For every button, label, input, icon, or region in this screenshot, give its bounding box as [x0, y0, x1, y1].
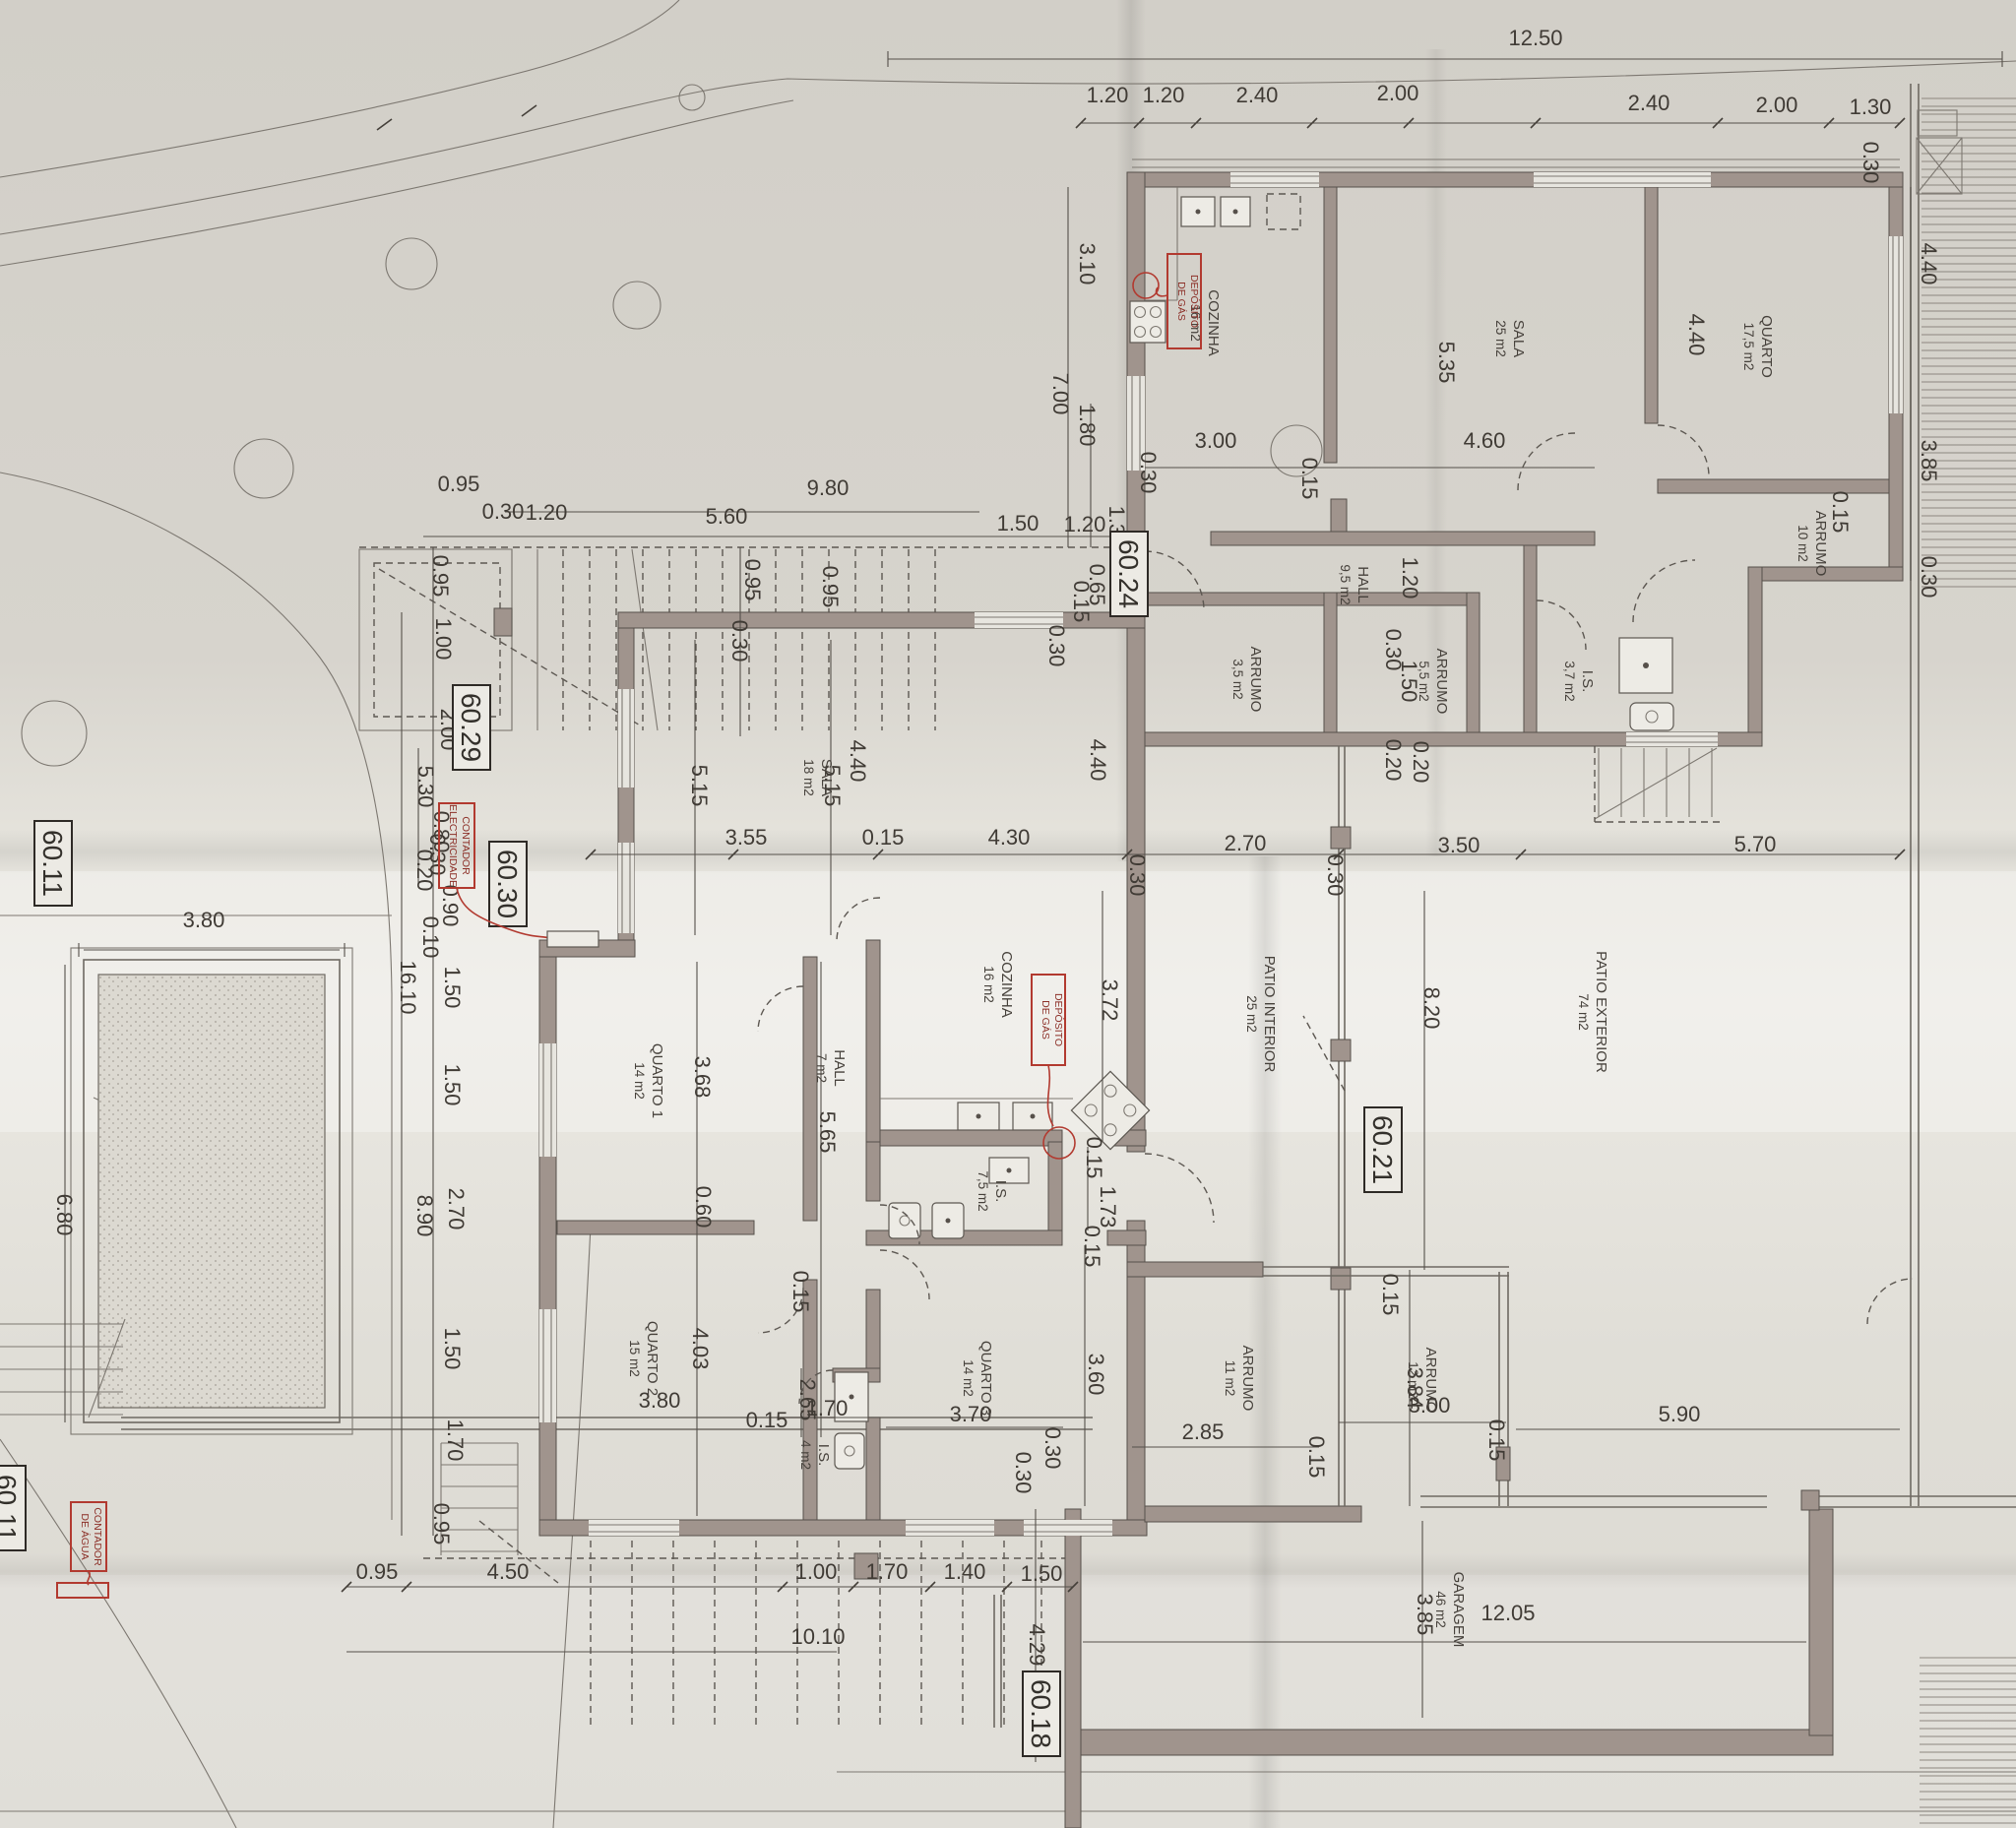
svg-text:2.70: 2.70	[444, 1188, 469, 1230]
svg-text:4.40: 4.40	[1086, 739, 1110, 782]
electricity-meter-box	[547, 931, 598, 947]
svg-text:0.30: 0.30	[1917, 556, 1941, 599]
svg-text:3.72: 3.72	[1098, 979, 1122, 1022]
level-marker-60-11: 60.11	[34, 821, 72, 906]
svg-text:0.95: 0.95	[429, 1503, 454, 1545]
svg-text:1.00: 1.00	[795, 1559, 838, 1584]
svg-text:12.05: 12.05	[1480, 1601, 1535, 1625]
svg-text:0.95: 0.95	[356, 1559, 399, 1584]
level-marker-60-24: 60.24	[1110, 532, 1148, 616]
svg-text:1.00: 1.00	[431, 618, 456, 661]
svg-text:3.85: 3.85	[1917, 440, 1941, 482]
svg-text:0.95: 0.95	[438, 472, 480, 496]
svg-text:0.10: 0.10	[418, 916, 443, 959]
svg-text:0.95: 0.95	[428, 555, 453, 598]
svg-text:2.00: 2.00	[1756, 93, 1798, 117]
floor-plan-sheet: 12.50 1.20 1.20 2.40 2.00 2.40 2.00 1.30…	[0, 0, 2016, 1828]
svg-text:2.40: 2.40	[1236, 83, 1279, 107]
svg-text:5.90: 5.90	[1659, 1402, 1701, 1426]
svg-text:60.18: 60.18	[1026, 1679, 1056, 1748]
toilet-is37	[1630, 703, 1673, 730]
svg-text:3.60: 3.60	[1084, 1354, 1108, 1396]
stove-upper	[1130, 301, 1165, 343]
svg-text:16.10: 16.10	[396, 960, 420, 1014]
svg-text:12.50: 12.50	[1508, 26, 1562, 50]
svg-text:8.90: 8.90	[412, 1195, 437, 1237]
svg-text:1.40: 1.40	[944, 1559, 986, 1584]
svg-text:60.21: 60.21	[1367, 1115, 1398, 1184]
svg-text:3.68: 3.68	[690, 1056, 715, 1099]
svg-text:60.30: 60.30	[492, 850, 523, 918]
svg-text:5.65: 5.65	[815, 1111, 840, 1154]
svg-text:2.40: 2.40	[1628, 91, 1670, 115]
svg-text:0.20: 0.20	[1381, 739, 1406, 782]
svg-text:1.20: 1.20	[526, 500, 568, 525]
svg-text:0.95: 0.95	[818, 566, 843, 608]
svg-text:3.00: 3.00	[1195, 428, 1237, 453]
svg-text:4.40: 4.40	[846, 740, 870, 783]
level-marker-60-11-b: 60.11	[0, 1466, 26, 1550]
svg-text:1.20: 1.20	[1398, 557, 1422, 599]
svg-text:CONTADORELECTRICIDADE: CONTADORELECTRICIDADE	[447, 804, 472, 887]
svg-text:1.70: 1.70	[866, 1559, 909, 1584]
toilet-is75	[889, 1203, 920, 1238]
svg-text:4.50: 4.50	[487, 1559, 530, 1584]
svg-text:0.30: 0.30	[1011, 1452, 1036, 1494]
svg-text:60.11: 60.11	[0, 1475, 22, 1542]
svg-text:0.15: 0.15	[1484, 1419, 1509, 1462]
svg-text:5.70: 5.70	[1734, 832, 1777, 856]
svg-text:1.50: 1.50	[997, 511, 1039, 536]
svg-text:0.15: 0.15	[1828, 491, 1853, 534]
svg-text:0.30: 0.30	[1323, 854, 1348, 897]
svg-text:1.73: 1.73	[1096, 1186, 1120, 1229]
level-marker-60-21: 60.21	[1364, 1107, 1402, 1192]
svg-text:0.30: 0.30	[727, 620, 752, 662]
svg-text:0.15: 0.15	[862, 825, 905, 850]
svg-text:0.15: 0.15	[1297, 458, 1322, 500]
svg-text:3.80: 3.80	[183, 908, 225, 932]
svg-text:6.80: 6.80	[52, 1194, 77, 1236]
svg-text:1.20: 1.20	[1143, 83, 1185, 107]
svg-text:4.29: 4.29	[1025, 1624, 1049, 1667]
svg-text:CONTADORDE ÁGUA: CONTADORDE ÁGUA	[79, 1507, 103, 1566]
svg-text:4.40: 4.40	[1684, 314, 1709, 356]
svg-text:1.50: 1.50	[1021, 1561, 1063, 1586]
svg-text:0.95: 0.95	[740, 559, 765, 601]
floor-plan-drawing: 12.50 1.20 1.20 2.40 2.00 2.40 2.00 1.30…	[0, 0, 2016, 1828]
svg-text:0.15: 0.15	[1304, 1436, 1329, 1479]
svg-text:0.15: 0.15	[1082, 1137, 1106, 1179]
svg-text:1.20: 1.20	[1064, 512, 1106, 536]
svg-text:0.30: 0.30	[1040, 1427, 1065, 1470]
svg-text:8.20: 8.20	[1419, 987, 1444, 1030]
svg-text:5.30: 5.30	[413, 766, 438, 808]
shower-is37	[1619, 638, 1672, 693]
svg-text:0.30: 0.30	[1136, 452, 1161, 494]
svg-text:3.50: 3.50	[1438, 833, 1480, 857]
svg-text:0.60: 0.60	[691, 1186, 716, 1229]
svg-text:2.70: 2.70	[1225, 831, 1267, 855]
level-marker-60-30: 60.30	[489, 842, 527, 926]
svg-text:4.60: 4.60	[1464, 428, 1506, 453]
svg-text:0.30: 0.30	[1044, 625, 1069, 667]
svg-text:4.03: 4.03	[688, 1328, 713, 1370]
svg-text:1.80: 1.80	[1075, 405, 1100, 447]
svg-text:0.30: 0.30	[1125, 854, 1150, 897]
svg-text:0.30: 0.30	[482, 499, 525, 524]
svg-text:5.35: 5.35	[1434, 342, 1459, 384]
svg-text:0.15: 0.15	[788, 1271, 813, 1313]
svg-text:0.30: 0.30	[1858, 142, 1883, 184]
svg-text:5.15: 5.15	[687, 765, 712, 807]
svg-text:0.15: 0.15	[1080, 1226, 1104, 1268]
svg-text:3.10: 3.10	[1075, 243, 1100, 285]
svg-text:2.85: 2.85	[1182, 1419, 1225, 1444]
svg-text:1.30: 1.30	[1850, 95, 1892, 119]
svg-text:7.00: 7.00	[1048, 373, 1073, 415]
svg-text:2.00: 2.00	[1377, 81, 1419, 105]
level-marker-60-29: 60.29	[453, 685, 490, 770]
svg-text:1.50: 1.50	[440, 967, 465, 1009]
svg-text:1.50: 1.50	[440, 1064, 465, 1106]
toilet-is4	[835, 1433, 864, 1469]
deck-hatch-top-right	[1921, 94, 2016, 591]
svg-text:9.80: 9.80	[807, 475, 850, 500]
svg-text:1.70: 1.70	[806, 1396, 849, 1420]
svg-text:1.50: 1.50	[440, 1328, 465, 1370]
paper-background	[0, 0, 2016, 1828]
svg-text:0.20: 0.20	[412, 850, 437, 892]
svg-text:4.40: 4.40	[1917, 243, 1941, 285]
svg-text:0.15: 0.15	[1069, 581, 1094, 623]
svg-text:10.10: 10.10	[790, 1624, 845, 1649]
svg-text:5.60: 5.60	[706, 504, 748, 529]
svg-text:60.29: 60.29	[456, 693, 486, 762]
svg-text:4.30: 4.30	[988, 825, 1031, 850]
svg-text:0.20: 0.20	[1409, 741, 1433, 784]
svg-text:1.70: 1.70	[443, 1419, 468, 1462]
svg-text:3.55: 3.55	[725, 825, 768, 850]
svg-text:1.20: 1.20	[1087, 83, 1129, 107]
deck-hatch-bottom-right	[1920, 1654, 2016, 1828]
svg-text:60.24: 60.24	[1113, 539, 1144, 608]
svg-text:60.11: 60.11	[37, 830, 68, 897]
svg-text:0.15: 0.15	[1378, 1274, 1403, 1316]
svg-text:0.15: 0.15	[746, 1408, 788, 1432]
level-marker-60-18: 60.18	[1023, 1671, 1060, 1756]
